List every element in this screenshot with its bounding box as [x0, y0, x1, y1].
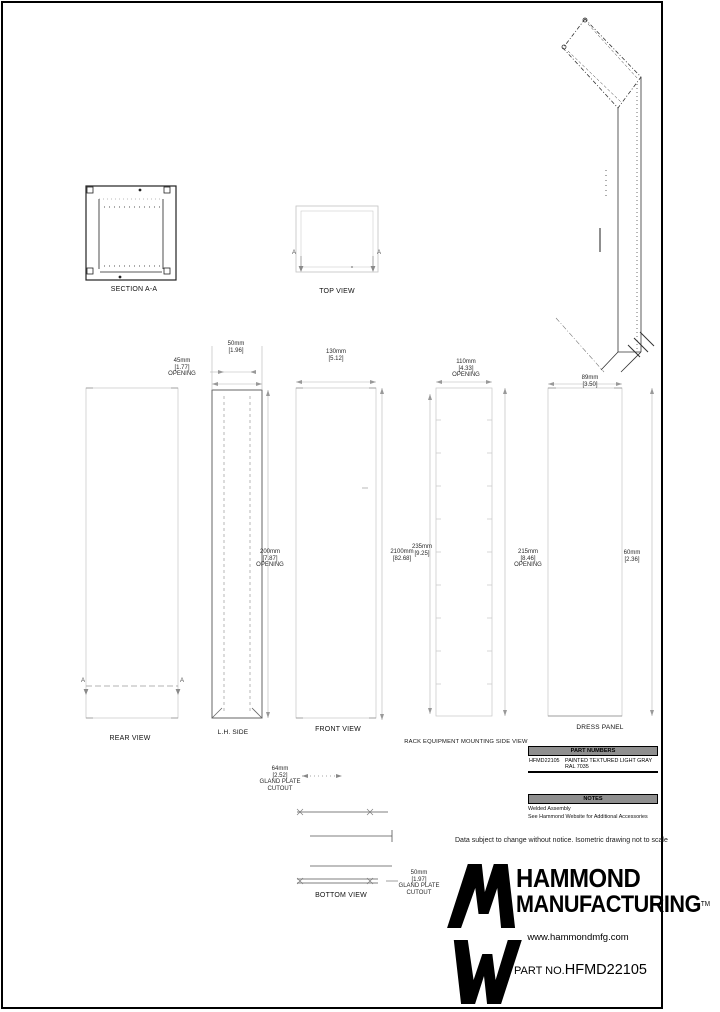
note-line: See Hammond Website for Additional Acces… [528, 814, 658, 820]
website-url: www.hammondmfg.com [516, 932, 640, 943]
dim-mm: 89mm [570, 375, 610, 382]
dim-in: [1.96] [214, 348, 258, 355]
dim-in: [1.77] [158, 365, 206, 372]
hammond-logo-m-icon [447, 864, 522, 928]
isometric-view [556, 18, 654, 372]
dim-gland-plate-cutout-1: 64mm [2.52] GLAND PLATE CUTOUT [256, 766, 304, 793]
part-numbers-header: PART NUMBERS [528, 746, 658, 756]
dress-panel-label: DRESS PANEL [560, 724, 640, 731]
dim-mm: 200mm [248, 549, 292, 556]
dim-in: [4.33] [444, 366, 488, 373]
drawing-page: A A [0, 0, 720, 1012]
part-number-value: HFMD22105 [565, 962, 647, 978]
dim-dresspanel-depth: 60mm [2.36] [614, 550, 650, 563]
front-view-label: FRONT VIEW [298, 726, 378, 733]
finish-cell: PAINTED TEXTURED LIGHT GRAY RAL 7035 [565, 758, 657, 770]
dim-note: CUTOUT [396, 890, 442, 897]
disclaimer-text: Data subject to change without notice. I… [455, 837, 668, 844]
hammond-logo-w-icon [447, 940, 522, 1004]
bottom-view [297, 774, 398, 884]
notes-header: NOTES [528, 794, 658, 804]
brand-name-line1: HAMMOND [516, 863, 640, 894]
brand-manufacturing-text: MANUFACTURING [516, 891, 701, 918]
rack-side-view [436, 388, 492, 716]
dim-mm: 60mm [614, 550, 650, 557]
dim-mm: 50mm [214, 341, 258, 348]
notes-table: NOTES Welded Assembly See Hammond Websit… [528, 794, 658, 820]
dim-in: [9.25] [404, 551, 440, 558]
rear-view-label: REAR VIEW [90, 735, 170, 742]
dim-mm: 235mm [404, 544, 440, 551]
dim-note: OPENING [444, 372, 488, 379]
dim-in: [2.36] [614, 557, 650, 564]
dim-side-opening-height: 200mm [7.87] OPENING [248, 549, 292, 569]
dim-note: OPENING [158, 371, 206, 378]
section-marker-a: A [180, 678, 184, 684]
part-number-line: PART NO.HFMD22105 [514, 961, 647, 979]
dim-mm: 130mm [314, 349, 358, 356]
front-view [296, 388, 376, 718]
dim-rack-opening-height: 215mm [8.46] OPENING [506, 549, 550, 569]
part-number-cell: HFMD22105 [529, 758, 565, 770]
sheet-border [2, 2, 662, 1008]
dim-rack-opening: 110mm [4.33] OPENING [444, 359, 488, 379]
dim-in: [3.50] [570, 382, 610, 389]
dim-in: [2.52] [256, 773, 304, 780]
drawing-linework: A A [0, 0, 720, 1012]
lh-side-label: L.H. SIDE [193, 729, 273, 736]
rack-side-label: RACK EQUIPMENT MOUNTING SIDE VIEW [400, 739, 532, 745]
section-aa-view [86, 186, 176, 280]
bottom-view-label: BOTTOM VIEW [301, 892, 381, 899]
dim-opening-lhside: 45mm [1.77] OPENING [158, 358, 206, 378]
dim-in: [8.46] [506, 556, 550, 563]
dim-note: CUTOUT [256, 786, 304, 793]
dim-note: OPENING [506, 562, 550, 569]
trademark-symbol: TM [701, 901, 710, 908]
top-view-label: TOP VIEW [297, 288, 377, 295]
dim-note: GLAND PLATE [256, 779, 304, 786]
top-view [296, 206, 378, 272]
dim-lhside-width: 50mm [1.96] [214, 341, 258, 354]
dim-gland-plate-cutout-2: 50mm [1.97] GLAND PLATE CUTOUT [396, 870, 442, 897]
dim-mm: 110mm [444, 359, 488, 366]
part-no-label: PART NO. [514, 965, 565, 977]
note-line: Welded Assembly [528, 806, 658, 812]
part-numbers-table: PART NUMBERS HFMD22105 PAINTED TEXTURED … [528, 746, 658, 773]
section-marker-a: A [81, 678, 85, 684]
brand-name-line2: MANUFACTURINGTM [516, 891, 710, 919]
table-row: HFMD22105 PAINTED TEXTURED LIGHT GRAY RA… [528, 756, 658, 773]
dim-secondary-height: 235mm [9.25] [404, 544, 440, 557]
section-marker-a: A [377, 250, 381, 256]
dim-note: GLAND PLATE [396, 883, 442, 890]
dim-in: [5.12] [314, 356, 358, 363]
rear-view [84, 388, 181, 718]
dim-mm: 45mm [158, 358, 206, 365]
section-aa-label: SECTION A-A [94, 286, 174, 293]
section-marker-a: A [292, 250, 296, 256]
dim-front-width: 130mm [5.12] [314, 349, 358, 362]
dimension-lines [210, 346, 654, 720]
dim-in: [7.87] [248, 556, 292, 563]
dim-mm: 64mm [256, 766, 304, 773]
dim-mm: 50mm [396, 870, 442, 877]
dim-mm: 215mm [506, 549, 550, 556]
dress-panel-view [548, 388, 622, 716]
dim-in: [1.97] [396, 877, 442, 884]
dim-note: OPENING [248, 562, 292, 569]
dim-dresspanel-width: 89mm [3.50] [570, 375, 610, 388]
